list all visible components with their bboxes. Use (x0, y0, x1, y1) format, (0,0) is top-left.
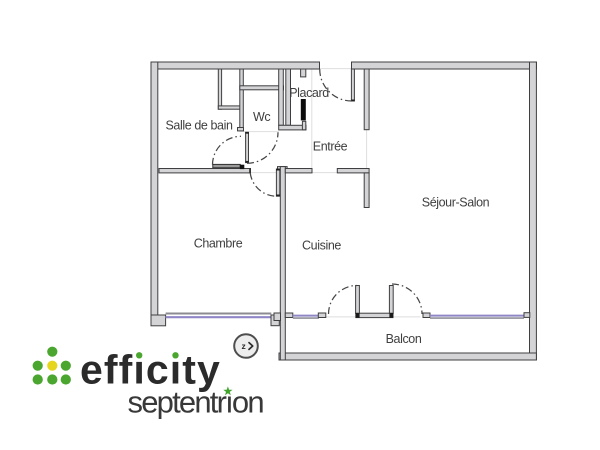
svg-text:Entrée: Entrée (313, 140, 348, 154)
svg-text:z: z (241, 341, 245, 351)
svg-text:septentrıon: septentrıon (128, 385, 264, 420)
svg-text:Wc: Wc (253, 110, 270, 124)
svg-text:Chambre: Chambre (194, 237, 243, 251)
svg-text:Séjour-Salon: Séjour-Salon (422, 196, 490, 210)
svg-text:Salle de bain: Salle de bain (165, 119, 233, 133)
svg-text:Cuisine: Cuisine (302, 239, 341, 253)
svg-text:Balcon: Balcon (386, 332, 422, 346)
svg-text:Placard: Placard (289, 86, 329, 100)
